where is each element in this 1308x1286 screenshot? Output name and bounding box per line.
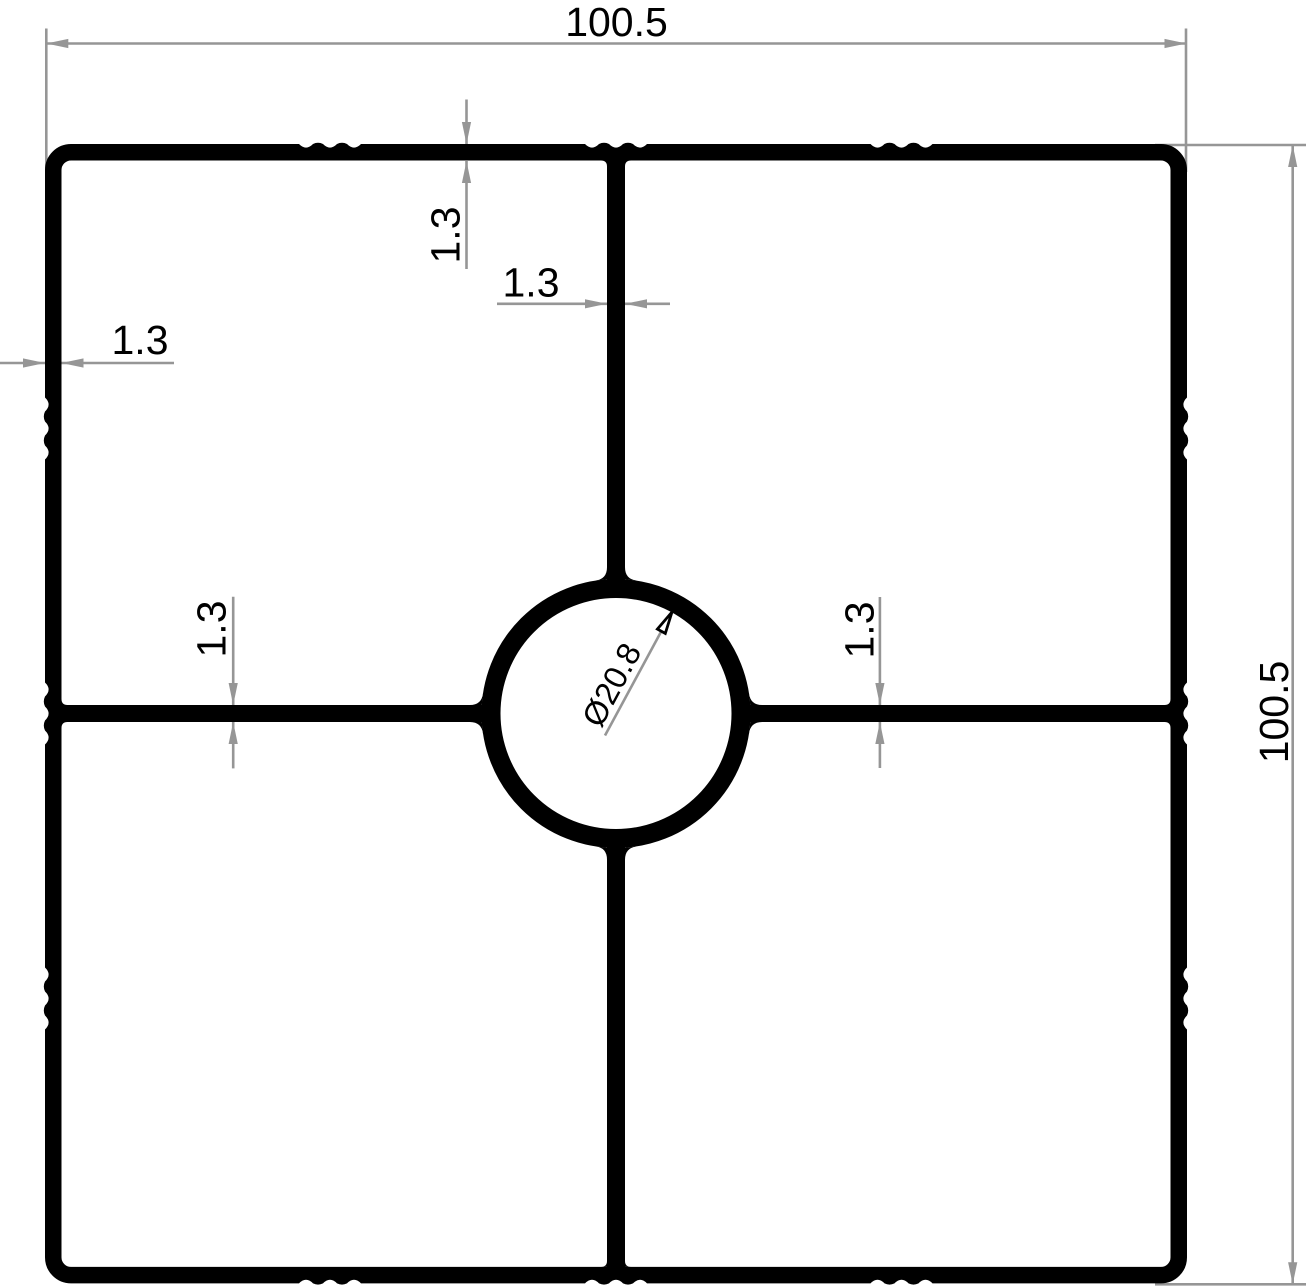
svg-text:100.5: 100.5 xyxy=(1251,661,1297,764)
svg-text:1.3: 1.3 xyxy=(837,602,883,659)
svg-text:1.3: 1.3 xyxy=(189,601,235,658)
svg-text:1.3: 1.3 xyxy=(423,207,469,264)
svg-text:100.5: 100.5 xyxy=(565,0,668,45)
svg-text:1.3: 1.3 xyxy=(112,317,169,363)
svg-text:1.3: 1.3 xyxy=(503,260,560,306)
